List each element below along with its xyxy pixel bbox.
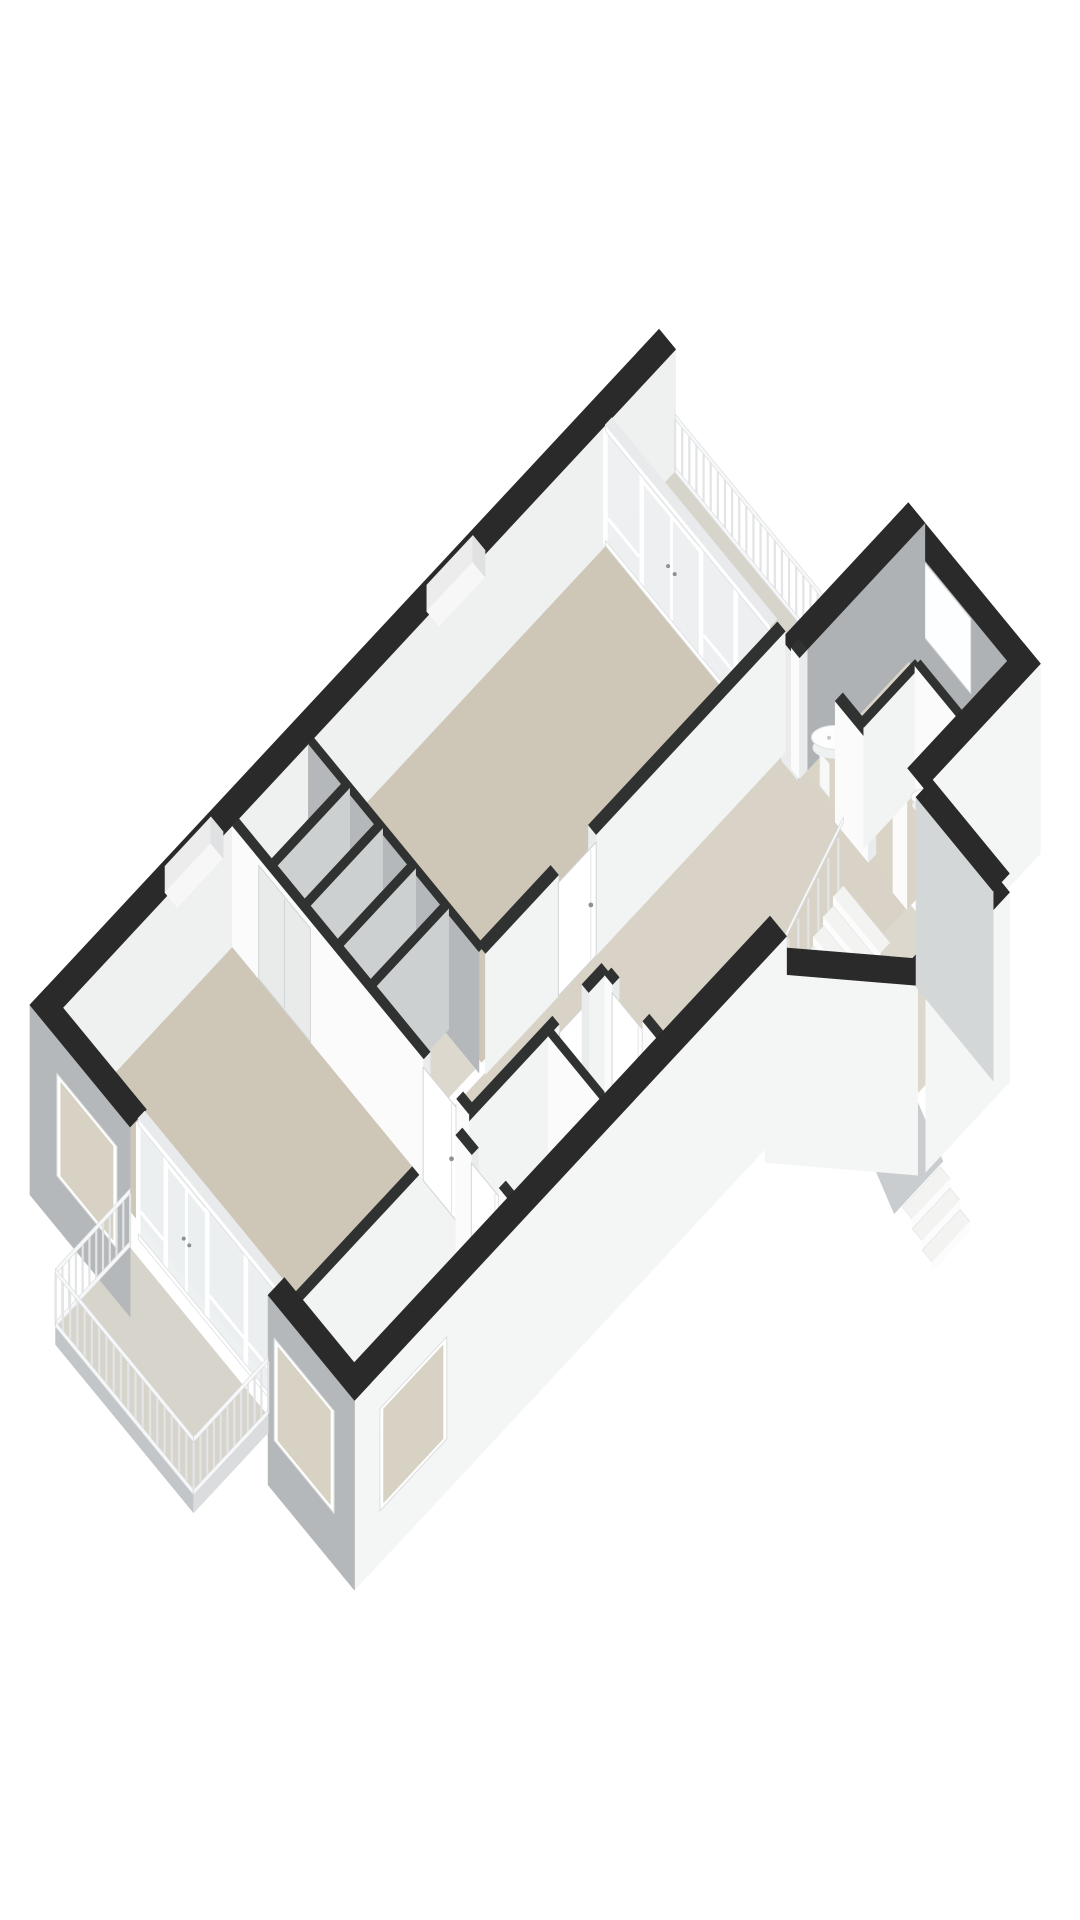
floor-plan-page (0, 0, 1080, 1920)
wall-stairwell-diagonal (765, 946, 918, 1175)
wall-hall-bath-a (791, 639, 807, 778)
floor-plan-3d (0, 0, 1080, 1920)
